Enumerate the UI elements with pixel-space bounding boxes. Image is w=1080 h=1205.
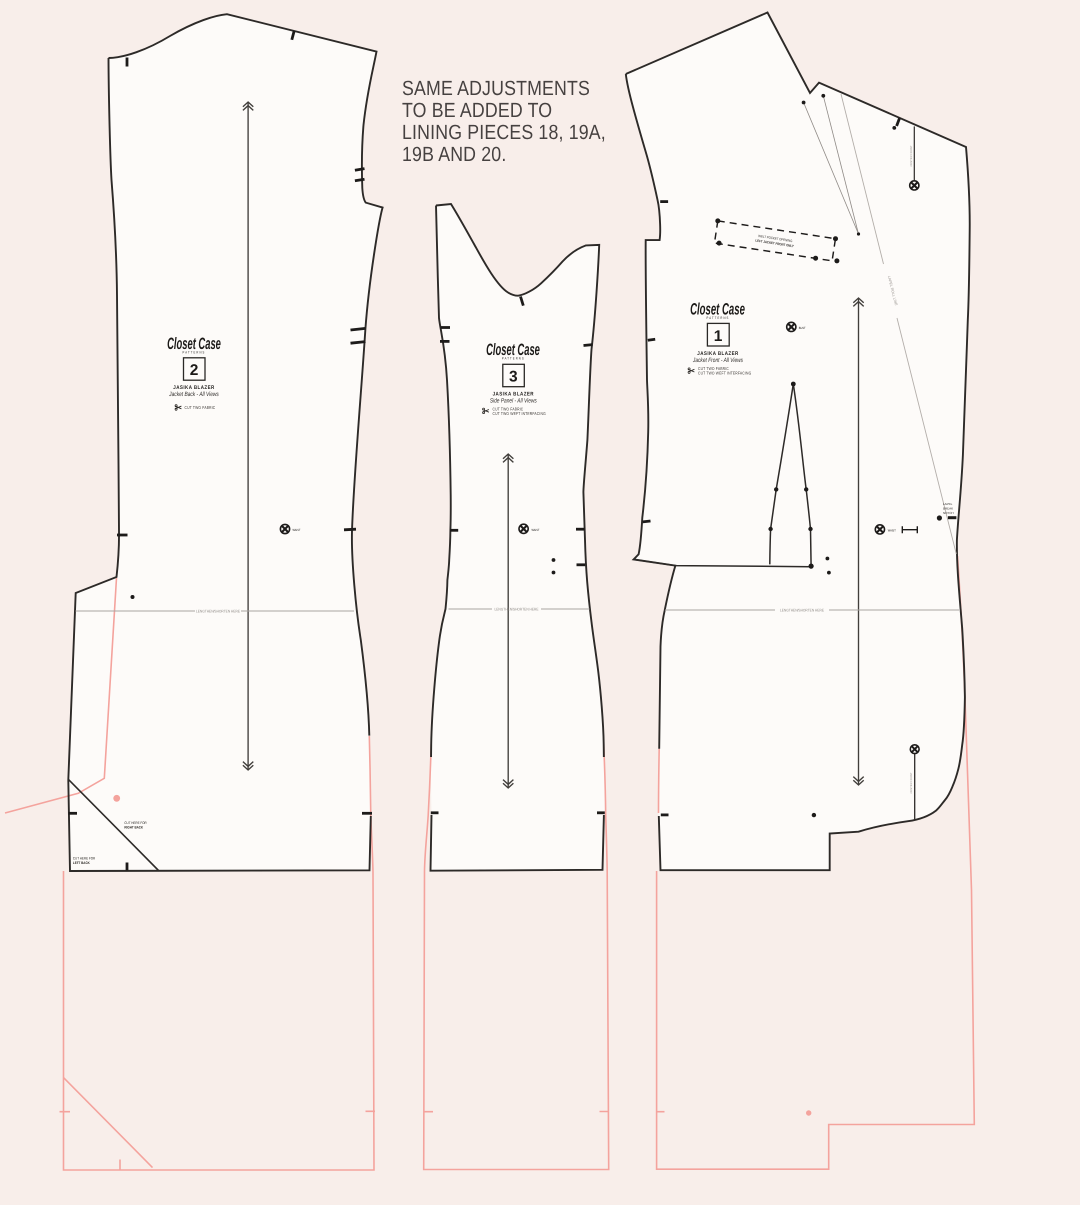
svg-text:LAPEL: LAPEL [943, 502, 953, 506]
svg-text:PATTERNS: PATTERNS [183, 350, 206, 354]
svg-text:LEFT BACK: LEFT BACK [73, 861, 90, 865]
svg-text:CENTER FRONT: CENTER FRONT [910, 145, 913, 166]
svg-text:LENGTHEN/SHORTEN HERE: LENGTHEN/SHORTEN HERE [494, 608, 538, 612]
svg-text:CUT HERE FOR: CUT HERE FOR [73, 856, 96, 860]
svg-text:3: 3 [509, 369, 518, 386]
svg-text:CUT HERE FOR: CUT HERE FOR [124, 821, 147, 825]
svg-text:CUT TWO WEFT INTERFACING: CUT TWO WEFT INTERFACING [493, 411, 546, 416]
svg-text:BREAK: BREAK [943, 507, 953, 511]
svg-text:LINING PIECES 18, 19A,: LINING PIECES 18, 19A, [402, 121, 606, 144]
svg-text:Side Panel - All Views: Side Panel - All Views [490, 398, 537, 405]
svg-text:NOTCH: NOTCH [943, 511, 954, 515]
svg-text:LENGTHEN/SHORTEN HERE: LENGTHEN/SHORTEN HERE [780, 609, 824, 613]
svg-text:SAME ADJUSTMENTS: SAME ADJUSTMENTS [402, 77, 590, 100]
svg-text:RIGHT BACK: RIGHT BACK [124, 826, 143, 830]
svg-text:WAIST: WAIST [532, 528, 540, 532]
svg-text:19B AND 20.: 19B AND 20. [402, 143, 506, 166]
svg-text:Jacket Front - All Views: Jacket Front - All Views [692, 357, 743, 364]
svg-text:PATTERNS: PATTERNS [707, 316, 730, 320]
svg-text:LENGTHEN/SHORTEN HERE: LENGTHEN/SHORTEN HERE [196, 610, 240, 614]
svg-text:PATTERNS: PATTERNS [502, 356, 525, 360]
svg-text:WAIST: WAIST [888, 528, 896, 532]
svg-text:TO BE ADDED TO: TO BE ADDED TO [402, 99, 552, 122]
svg-text:CUT TWO WEFT INTERFACING: CUT TWO WEFT INTERFACING [698, 371, 751, 376]
svg-text:WAIST: WAIST [293, 528, 301, 532]
svg-text:2: 2 [190, 362, 199, 379]
svg-text:CENTER FRONT: CENTER FRONT [910, 772, 913, 793]
svg-text:BUST: BUST [799, 326, 806, 330]
svg-text:Jacket Back - All Views: Jacket Back - All Views [168, 391, 218, 398]
svg-text:1: 1 [714, 328, 723, 345]
svg-text:CUT TWO FABRIC: CUT TWO FABRIC [185, 405, 216, 410]
